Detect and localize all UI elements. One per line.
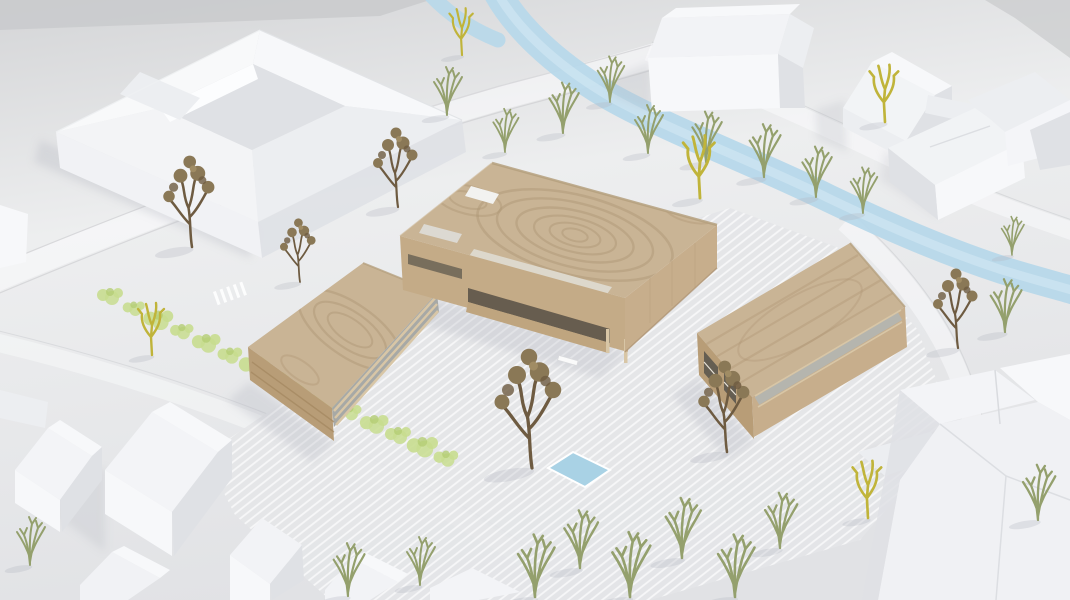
gabled-house [648,4,814,112]
veranda-post [606,329,610,353]
white-block-left-edge [0,205,28,268]
site-model-photo [0,0,1070,600]
model-photo [0,0,1070,600]
